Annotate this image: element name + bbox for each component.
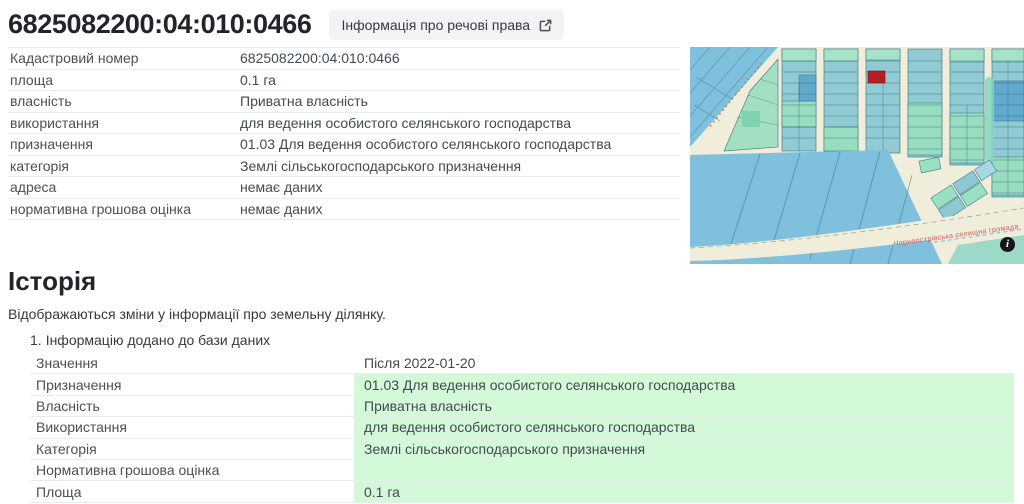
history-description: Відображаються зміни у інформації про зе… <box>8 306 1024 322</box>
info-icon: i <box>1006 239 1009 250</box>
table-row: Власність Приватна власність <box>30 396 1014 417</box>
table-row: Категорія Землі сільськогосподарського п… <box>30 439 1014 460</box>
page-header: 6825082200:04:010:0466 Інформація про ре… <box>0 0 1024 40</box>
row-label: призначення <box>8 136 240 152</box>
history-entry-title: 1.Інформацію додано до бази даних <box>30 332 1024 348</box>
row-label: Категорія <box>30 439 354 460</box>
history-entry-label: Інформацію додано до бази даних <box>46 332 270 348</box>
row-value: 0.1 га <box>240 72 680 88</box>
row-label: використання <box>8 115 240 131</box>
table-row: категоріяЗемлі сільськогосподарського пр… <box>8 156 680 178</box>
history-title: Історія <box>8 266 1024 297</box>
row-label: Власність <box>30 396 354 417</box>
map-info-button[interactable]: i <box>1000 237 1015 252</box>
history-section: Історія Відображаються зміни у інформаці… <box>0 266 1024 504</box>
row-label: власність <box>8 93 240 109</box>
row-value: Приватна власність <box>240 93 680 109</box>
history-value-cell: Приватна власність <box>354 396 1014 417</box>
row-label: адреса <box>8 179 240 195</box>
page-title: 6825082200:04:010:0466 <box>8 9 311 40</box>
table-row: власністьПриватна власність <box>8 91 680 113</box>
table-row: призначення01.03 Для ведення особистого … <box>8 134 680 156</box>
highlighted-parcel[interactable] <box>868 71 885 83</box>
table-row: Нормативна грошова оцінка <box>30 460 1014 481</box>
row-value: 6825082200:04:010:0466 <box>240 50 680 66</box>
table-row: адресанемає даних <box>8 177 680 199</box>
history-value-cell <box>354 460 1014 481</box>
table-row: використаннядля ведення особистого селян… <box>8 113 680 135</box>
history-value-cell: 0.1 га <box>354 481 1014 502</box>
row-label: Нормативна грошова оцінка <box>30 460 354 481</box>
row-value: Після 2022-01-20 <box>354 353 1014 374</box>
row-label: Площа <box>30 481 354 502</box>
history-entry-index: 1. <box>30 332 42 348</box>
history-value-cell: Землі сільськогосподарського призначення <box>354 439 1014 460</box>
history-value-cell: 01.03 Для ведення особистого селянського… <box>354 374 1014 395</box>
parcel-info-table: Кадастровий номер6825082200:04:010:0466 … <box>8 47 680 220</box>
history-entry: 1.Інформацію додано до бази даних Значен… <box>8 332 1024 504</box>
row-label: площа <box>8 72 240 88</box>
cadastral-map[interactable]: Чорноострівська селищна громада i <box>690 47 1024 264</box>
table-row: Площа 0.1 га <box>30 481 1014 502</box>
row-value: немає даних <box>240 201 680 217</box>
table-row: площа0.1 га <box>8 70 680 92</box>
row-label: Кадастровий номер <box>8 50 240 66</box>
main-section: Кадастровий номер6825082200:04:010:0466 … <box>0 47 1024 263</box>
property-rights-button-label: Інформація про речові права <box>341 17 530 33</box>
history-table: Значення Після 2022-01-20 Призначення 01… <box>30 353 1014 504</box>
table-row: Призначення 01.03 Для ведення особистого… <box>30 374 1014 395</box>
row-value: Землі сільськогосподарського призначення <box>240 158 680 174</box>
table-row: Використання для ведення особистого селя… <box>30 417 1014 438</box>
row-label: категорія <box>8 158 240 174</box>
table-row: Кадастровий номер6825082200:04:010:0466 <box>8 48 680 70</box>
row-label: нормативна грошова оцінка <box>8 201 240 217</box>
external-link-icon <box>539 19 552 32</box>
row-label: Призначення <box>30 374 354 395</box>
history-value-cell: для ведення особистого селянського госпо… <box>354 417 1014 438</box>
table-row: Значення Після 2022-01-20 <box>30 353 1014 374</box>
row-value: для ведення особистого селянського госпо… <box>240 115 680 131</box>
row-value: 01.03 Для ведення особистого селянського… <box>240 136 680 152</box>
row-label: Використання <box>30 417 354 438</box>
property-rights-button[interactable]: Інформація про речові права <box>329 10 564 40</box>
row-value: немає даних <box>240 179 680 195</box>
row-label: Значення <box>30 353 354 374</box>
table-row: нормативна грошова оцінканемає даних <box>8 199 680 221</box>
